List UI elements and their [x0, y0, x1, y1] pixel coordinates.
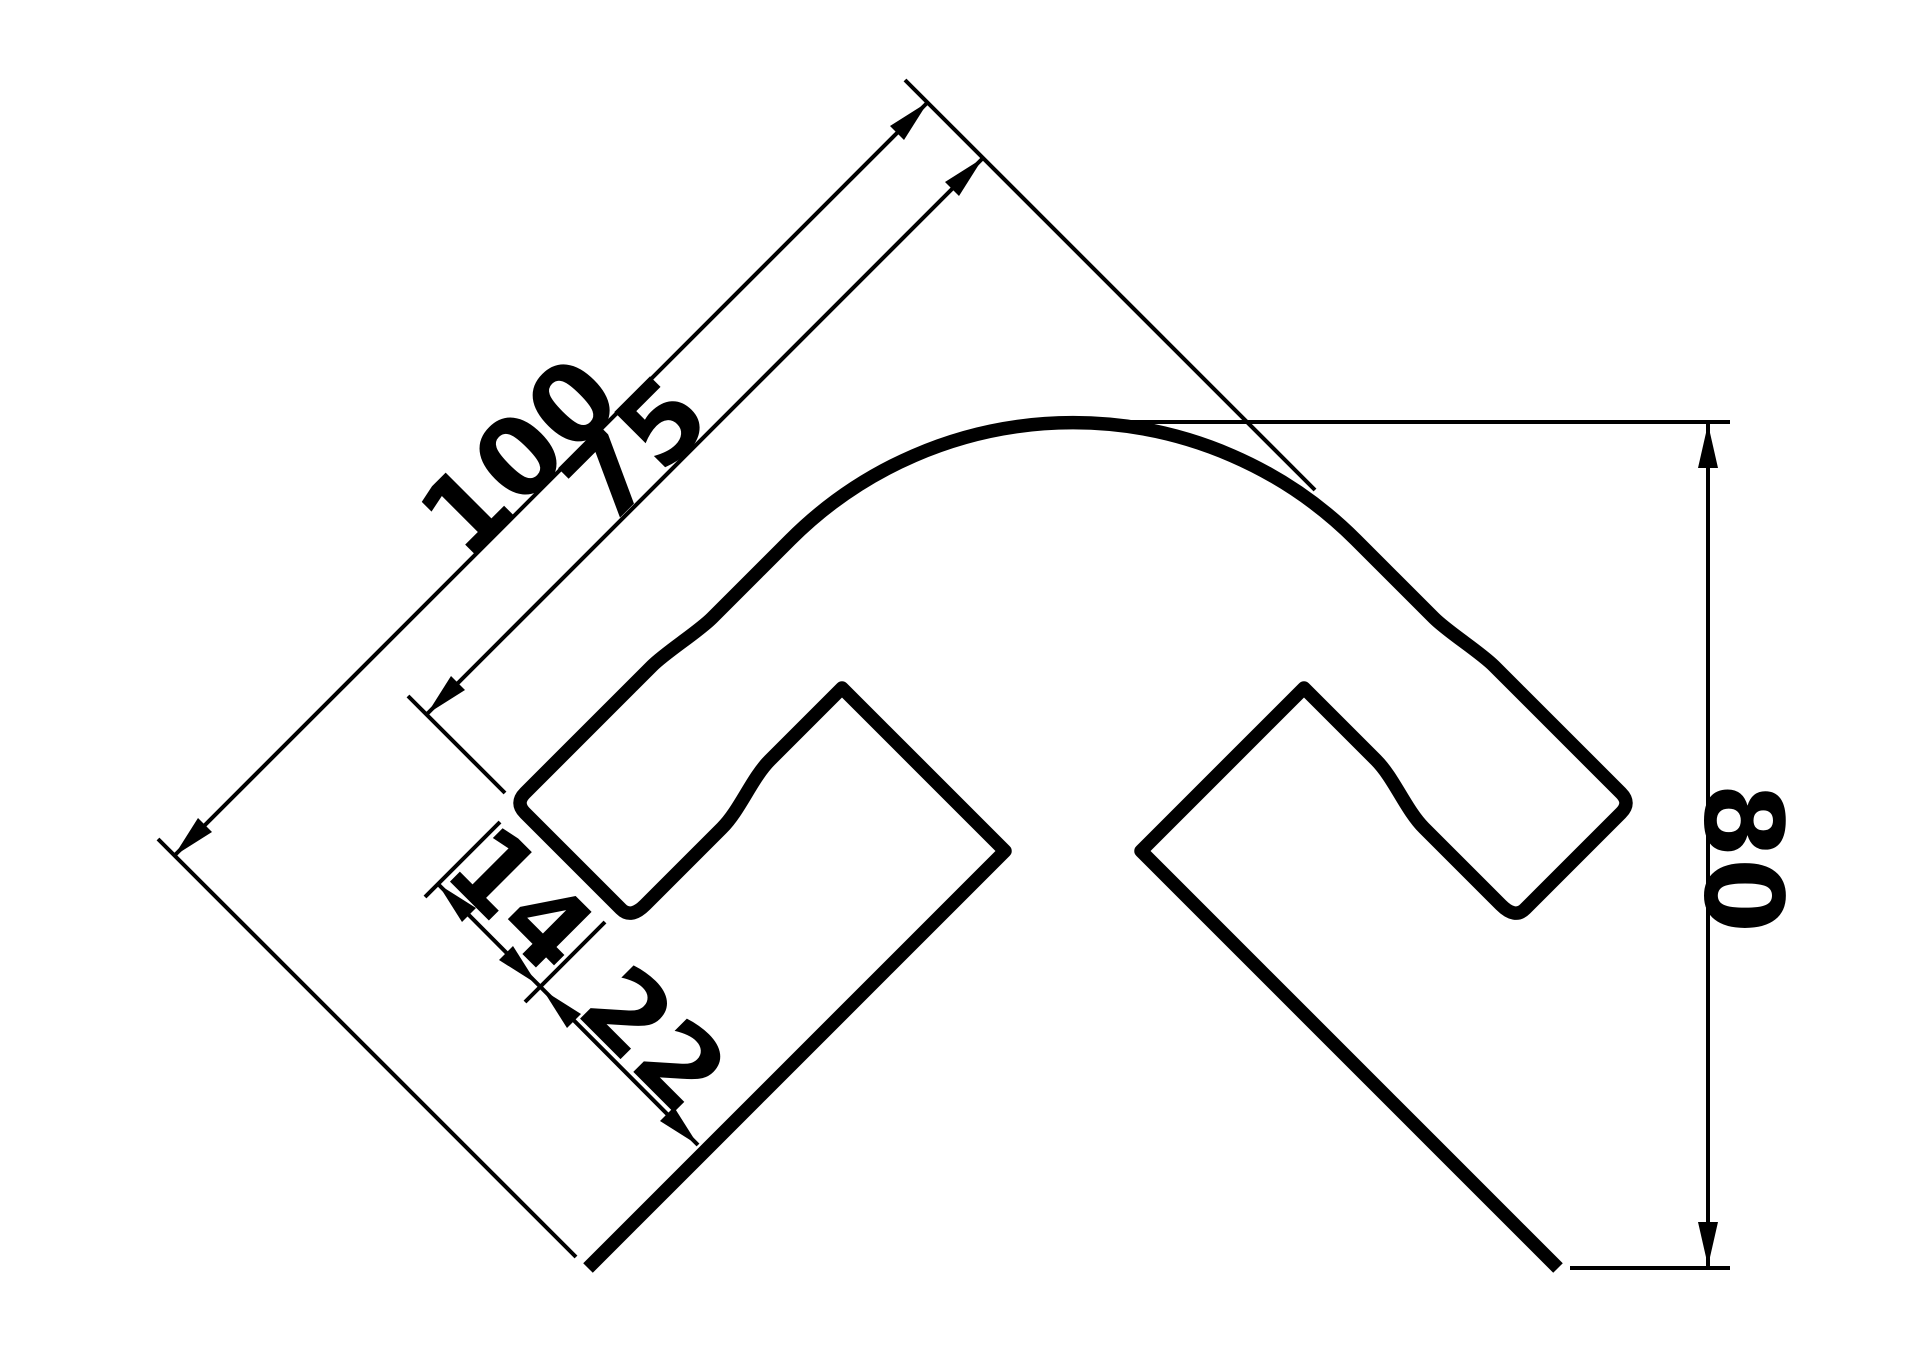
- profile-outline: [520, 423, 1626, 1268]
- dim-label-22: 22: [556, 943, 751, 1138]
- arrow-80-top: [1698, 424, 1718, 468]
- drawing-canvas: 100 75 14 22 80: [0, 0, 1920, 1357]
- extension-line-flange-end: [408, 696, 505, 793]
- technical-drawing: 100 75 14 22 80: [0, 0, 1920, 1357]
- dim-label-80: 80: [1680, 783, 1805, 933]
- arrow-80-bottom: [1698, 1222, 1718, 1266]
- dim-label-14: 14: [423, 803, 618, 998]
